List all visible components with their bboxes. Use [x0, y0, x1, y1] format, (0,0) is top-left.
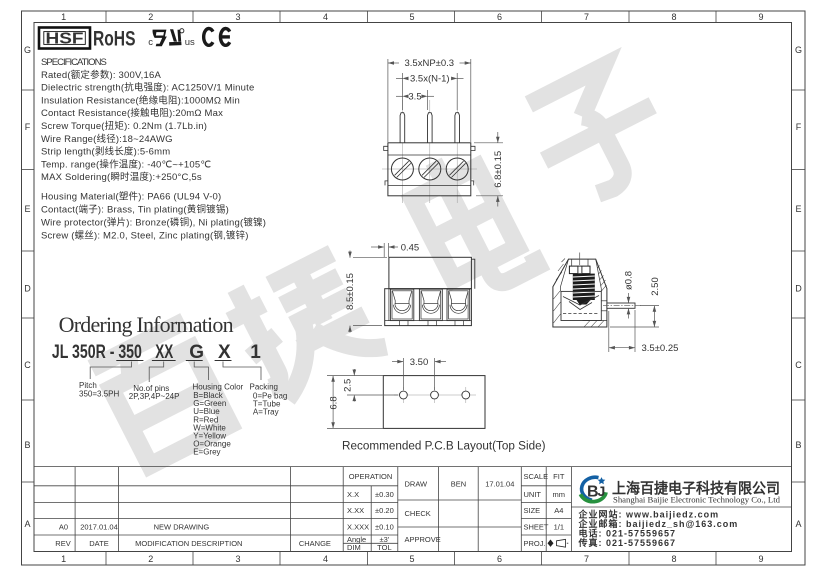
svg-text:C: C [795, 360, 802, 370]
svg-text:8.5±0.15: 8.5±0.15 [345, 273, 356, 310]
svg-text:3.5x(N-1): 3.5x(N-1) [410, 74, 450, 85]
svg-text:1/1: 1/1 [554, 523, 564, 532]
svg-text:C: C [24, 360, 31, 370]
svg-text:SHEET: SHEET [524, 523, 549, 532]
svg-text:c: c [148, 37, 153, 48]
svg-text:A0: A0 [59, 523, 68, 532]
svg-text:X.X: X.X [347, 490, 359, 499]
svg-text:4: 4 [323, 12, 328, 22]
svg-text:MAX Soldering(瞬时温度):+250°C,5s: MAX Soldering(瞬时温度):+250°C,5s [41, 171, 202, 183]
svg-text:SCALE: SCALE [524, 472, 549, 481]
svg-text:Screw (螺丝): M2.0, Steel, Zinc: Screw (螺丝): M2.0, Steel, Zinc plating(钢,… [41, 230, 249, 242]
svg-text:1: 1 [250, 342, 261, 363]
svg-text:电话: 021-57559657: 电话: 021-57559657 [579, 528, 677, 539]
svg-text:G: G [24, 45, 31, 55]
svg-text:Wire protector(弹片): Bronze(磷铜): Wire protector(弹片): Bronze(磷铜), Ni plati… [41, 217, 266, 229]
svg-text:Insulation Resistance(绝缘电阻):10: Insulation Resistance(绝缘电阻):1000MΩ Min [41, 94, 240, 106]
svg-text:G: G [795, 45, 802, 55]
svg-text:1: 1 [61, 12, 66, 22]
svg-text:传真: 021-57559667: 传真: 021-57559667 [578, 537, 677, 548]
svg-text:Dielectric strength(抗电强度): AC1: Dielectric strength(抗电强度): AC1250V/1 Min… [41, 82, 254, 94]
svg-text:F: F [796, 122, 802, 132]
svg-text:A: A [795, 519, 801, 529]
svg-text:1: 1 [61, 554, 66, 564]
svg-text:UNIT: UNIT [524, 490, 542, 499]
svg-text:2017.01.04: 2017.01.04 [80, 523, 118, 532]
svg-text:X: X [218, 342, 231, 363]
svg-text:2P,3P,4P~24P: 2P,3P,4P~24P [129, 392, 180, 401]
svg-text:DATE: DATE [89, 539, 108, 548]
svg-text:3.5±0.25: 3.5±0.25 [642, 343, 679, 354]
svg-text:Contact Resistance(接触电阻):20mΩ: Contact Resistance(接触电阻):20mΩ Max [41, 107, 223, 119]
svg-text:B: B [795, 440, 801, 450]
svg-text:5: 5 [409, 554, 414, 564]
svg-text:17.01.04: 17.01.04 [485, 480, 514, 489]
svg-text:TOL: TOL [377, 543, 391, 552]
svg-text:us: us [185, 37, 195, 48]
svg-text:B: B [24, 440, 30, 450]
svg-text:3.50: 3.50 [410, 357, 429, 368]
svg-text:SIZE: SIZE [524, 506, 541, 515]
svg-text:Housing Material(塑件): PA66 (UL: Housing Material(塑件): PA66 (UL94 V-0) [41, 191, 221, 203]
svg-text:6.8: 6.8 [329, 396, 340, 409]
svg-text:2: 2 [148, 12, 153, 22]
svg-text:2.50: 2.50 [650, 277, 661, 296]
svg-text:D: D [795, 284, 802, 294]
svg-text:APPROVE: APPROVE [405, 535, 441, 544]
svg-text:Shanghai Baijie Electronic Tec: Shanghai Baijie Electronic Technology Co… [613, 494, 781, 504]
svg-text:企业网站: www.baijiedz.com: 企业网站: www.baijiedz.com [578, 509, 720, 520]
svg-text:7: 7 [584, 554, 589, 564]
svg-text:8: 8 [671, 554, 676, 564]
svg-text:mm: mm [553, 490, 566, 499]
svg-text:NEW DRAWING: NEW DRAWING [154, 523, 210, 532]
svg-text:A=Tray: A=Tray [253, 408, 279, 417]
svg-text:350=3.5PH: 350=3.5PH [79, 389, 119, 398]
svg-text:2: 2 [148, 554, 153, 564]
svg-text:Ordering Information: Ordering Information [59, 312, 234, 337]
svg-text:Rated(额定参数): 300V,16A: Rated(额定参数): 300V,16A [41, 69, 161, 81]
svg-text:CHECK: CHECK [405, 509, 431, 518]
svg-text:Recommended P.C.B Layout(Top: Recommended P.C.B Layout(Top Side) [342, 441, 546, 453]
svg-text:FIT: FIT [553, 472, 565, 481]
svg-text:HSF: HSF [46, 31, 84, 48]
svg-text:0.45: 0.45 [401, 242, 420, 253]
svg-text:7: 7 [584, 12, 589, 22]
svg-text:DIM: DIM [347, 543, 361, 552]
svg-text:9: 9 [758, 12, 763, 22]
svg-text:JL 350R - 350: JL 350R - 350 [52, 342, 142, 363]
svg-text:CHANGE: CHANGE [299, 539, 331, 548]
svg-text:A4: A4 [554, 506, 563, 515]
svg-text:6: 6 [497, 12, 502, 22]
svg-text:E: E [24, 204, 30, 214]
svg-text:XX: XX [155, 342, 173, 363]
svg-text:E: E [795, 204, 801, 214]
svg-text:3: 3 [235, 554, 240, 564]
svg-text:SPECIFICATIONS: SPECIFICATIONS [41, 57, 107, 68]
svg-text:D: D [24, 284, 31, 294]
svg-text:X.XX: X.XX [347, 506, 364, 515]
svg-text:Packing: Packing [250, 383, 278, 392]
svg-text:X.XXX: X.XXX [347, 523, 369, 532]
svg-text:BEN: BEN [451, 480, 466, 489]
svg-text:Strip length(剥线长度):5-6mm: Strip length(剥线长度):5-6mm [41, 146, 170, 158]
svg-text:4: 4 [323, 554, 328, 564]
svg-text:RoHS: RoHS [93, 27, 136, 51]
svg-text:9: 9 [758, 554, 763, 564]
svg-text:8: 8 [671, 12, 676, 22]
svg-text:5: 5 [409, 12, 414, 22]
svg-text:G: G [189, 342, 204, 363]
svg-text:Screw Torque(扭矩): 0.2Nm (1.7Lb: Screw Torque(扭矩): 0.2Nm (1.7Lb.in) [41, 120, 207, 132]
svg-text:2.5: 2.5 [343, 379, 354, 392]
svg-text:Contact(端子): Brass, Tin platin: Contact(端子): Brass, Tin plating(黄铜镀锡) [41, 204, 229, 216]
svg-text:6.8±0.15: 6.8±0.15 [493, 151, 504, 188]
svg-text:ø0.8: ø0.8 [624, 271, 635, 290]
svg-text:3: 3 [235, 12, 240, 22]
svg-text:MODIFICATION DESCRIPTION: MODIFICATION DESCRIPTION [135, 539, 242, 548]
svg-text:企业邮箱: baijiedz_sh@163.com: 企业邮箱: baijiedz_sh@163.com [578, 518, 739, 529]
svg-text:DRAW: DRAW [405, 480, 429, 489]
svg-text:±0.20: ±0.20 [375, 506, 394, 515]
svg-text:6: 6 [497, 554, 502, 564]
svg-text:Temp. range(操作温度): -40℃~+105℃: Temp. range(操作温度): -40℃~+105℃ [41, 158, 211, 170]
svg-text:PROJ.: PROJ. [524, 539, 546, 548]
svg-text:±0.30: ±0.30 [375, 490, 394, 499]
svg-text:3.5xNP±0.3: 3.5xNP±0.3 [405, 58, 455, 69]
svg-text:±0.10: ±0.10 [375, 523, 394, 532]
svg-text:A: A [24, 519, 30, 529]
svg-text:REV: REV [55, 539, 70, 548]
svg-text:J: J [598, 483, 606, 499]
svg-text:Wire Range(线径):18~24AWG: Wire Range(线径):18~24AWG [41, 133, 173, 145]
svg-text:E=Grey: E=Grey [193, 448, 220, 457]
svg-text:F: F [25, 122, 31, 132]
svg-text:OPERATION: OPERATION [349, 472, 393, 481]
svg-text:3.5: 3.5 [408, 92, 421, 103]
